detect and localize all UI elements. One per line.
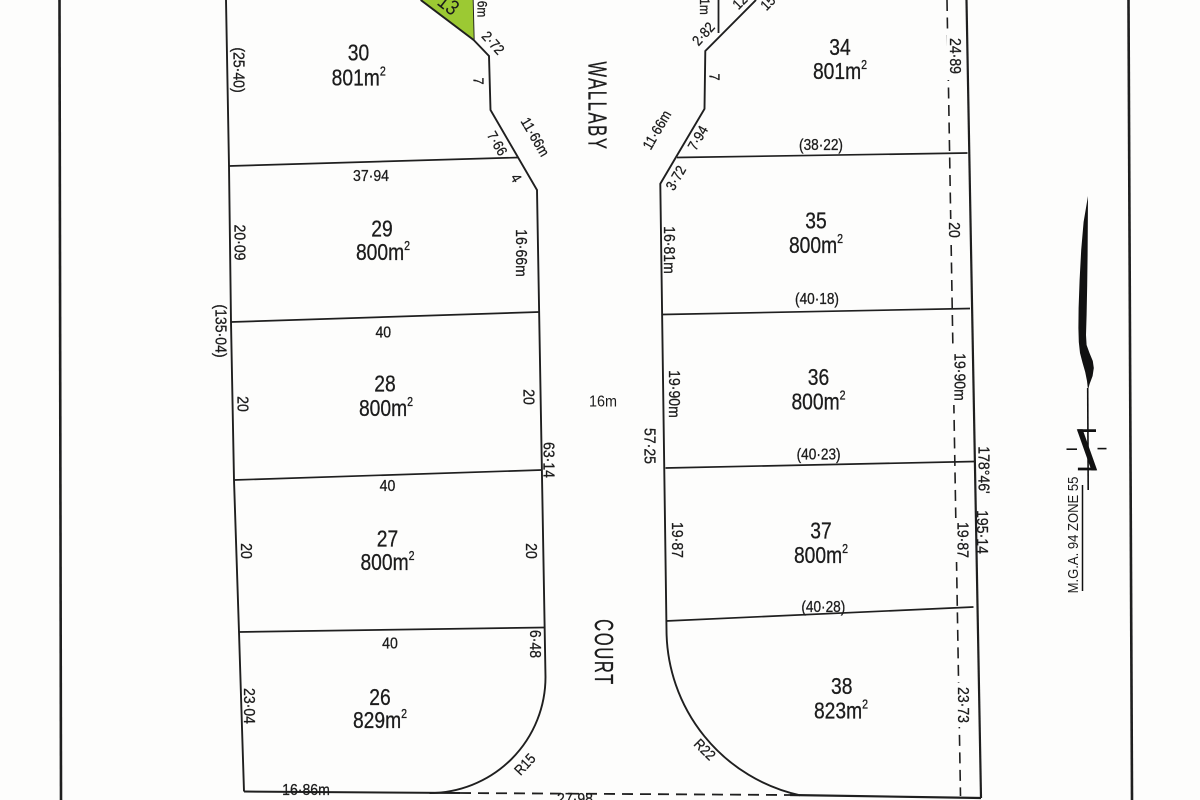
svg-text:37: 37	[810, 518, 831, 544]
svg-text:(135·04): (135·04)	[211, 304, 229, 357]
svg-text:195·14: 195·14	[973, 510, 991, 554]
svg-text:11·66m: 11·66m	[640, 108, 675, 153]
svg-text:40: 40	[380, 477, 396, 495]
svg-text:COURT: COURT	[589, 619, 619, 686]
svg-text:20: 20	[233, 396, 251, 412]
svg-text:20: 20	[945, 222, 963, 238]
svg-text:800m2: 800m2	[359, 394, 413, 422]
svg-text:WALLABY: WALLABY	[583, 61, 613, 150]
svg-text:27·98: 27·98	[557, 790, 593, 800]
svg-text:(40·23): (40·23)	[797, 447, 841, 464]
svg-text:2·82: 2·82	[689, 19, 718, 49]
svg-text:20: 20	[522, 543, 540, 559]
svg-text:6m: 6m	[475, 1, 491, 17]
svg-text:20·09: 20·09	[230, 225, 248, 261]
svg-text:19·87: 19·87	[953, 522, 971, 558]
svg-text:4: 4	[507, 171, 525, 185]
svg-text:(40·28): (40·28)	[801, 600, 845, 617]
svg-text:R22: R22	[691, 736, 719, 764]
svg-text:800m2: 800m2	[791, 387, 845, 415]
svg-text:801m2: 801m2	[332, 63, 386, 91]
svg-text:20: 20	[519, 389, 537, 405]
svg-text:1m: 1m	[697, 0, 713, 15]
svg-text:27: 27	[377, 526, 398, 552]
svg-text:7·66: 7·66	[484, 128, 511, 158]
svg-text:3·72: 3·72	[663, 163, 690, 193]
svg-text:57·25: 57·25	[640, 428, 658, 464]
svg-text:7: 7	[471, 77, 487, 84]
svg-text:12: 12	[729, 0, 750, 13]
svg-text:19·87: 19·87	[668, 522, 686, 558]
svg-text:2·72: 2·72	[479, 28, 508, 58]
svg-text:40: 40	[382, 634, 398, 652]
svg-text:35: 35	[805, 208, 826, 234]
svg-text:20: 20	[237, 543, 255, 559]
svg-text:801m2: 801m2	[813, 57, 867, 85]
svg-text:7: 7	[707, 73, 723, 80]
svg-text:29: 29	[371, 216, 392, 242]
svg-text:23·04: 23·04	[240, 688, 258, 724]
svg-text:40: 40	[375, 323, 391, 341]
svg-text:37·94: 37·94	[353, 167, 389, 185]
svg-text:63·14: 63·14	[539, 442, 557, 478]
svg-text:15: 15	[757, 0, 779, 14]
svg-text:19·90m: 19·90m	[950, 353, 968, 401]
svg-text:30: 30	[348, 40, 369, 66]
svg-text:800m2: 800m2	[356, 238, 410, 266]
svg-text:38: 38	[831, 673, 852, 699]
svg-text:16·86m: 16·86m	[282, 781, 330, 799]
svg-text:800m2: 800m2	[794, 541, 848, 569]
svg-text:829m2: 829m2	[353, 706, 407, 734]
svg-text:28: 28	[374, 371, 395, 397]
svg-text:(38·22): (38·22)	[799, 137, 843, 154]
svg-text:16·81m: 16·81m	[660, 226, 678, 274]
svg-text:11·66m: 11·66m	[518, 115, 553, 160]
svg-text:34: 34	[829, 34, 850, 60]
svg-text:24·89: 24·89	[946, 38, 964, 74]
svg-text:16·66m: 16·66m	[512, 229, 530, 277]
svg-text:6·48: 6·48	[526, 630, 544, 658]
svg-text:800m2: 800m2	[789, 231, 843, 259]
svg-text:19·90m: 19·90m	[665, 370, 683, 418]
svg-text:23·73: 23·73	[954, 687, 972, 723]
svg-text:(40·18): (40·18)	[795, 292, 839, 309]
svg-text:16m: 16m	[589, 393, 617, 411]
svg-text:(25·40): (25·40)	[229, 47, 247, 92]
svg-text:178°46': 178°46'	[974, 446, 992, 494]
svg-text:M.G.A. 94 ZONE 55: M.G.A. 94 ZONE 55	[1066, 476, 1082, 593]
svg-text:7·94: 7·94	[685, 123, 712, 153]
svg-text:36: 36	[808, 364, 829, 390]
svg-text:800m2: 800m2	[360, 548, 414, 576]
svg-text:823m2: 823m2	[814, 696, 868, 724]
